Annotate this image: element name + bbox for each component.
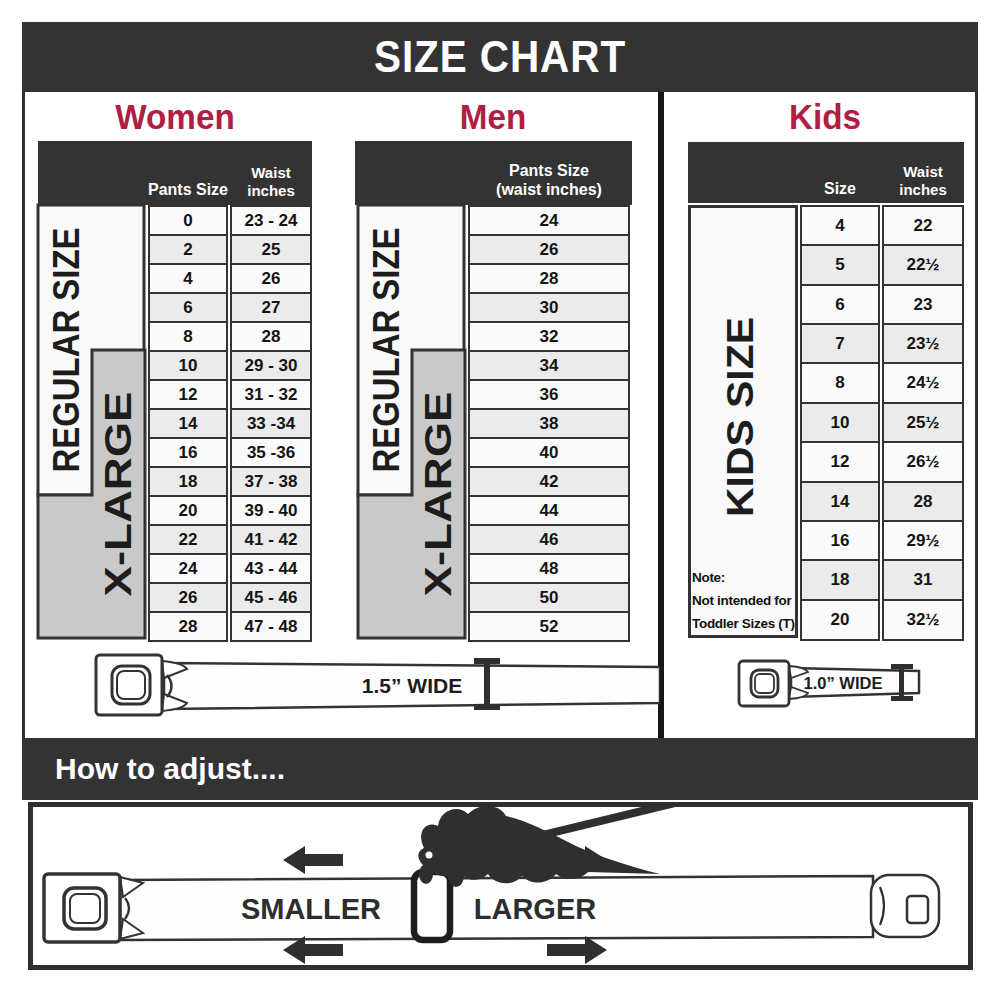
pants-size-cell: 18 — [148, 466, 228, 497]
size-cell: 8 — [800, 362, 880, 404]
pants-size-cell: 12 — [148, 379, 228, 410]
kids-belt-illustration: 1.0” WIDE — [735, 653, 925, 713]
waist-cell: 25 — [230, 234, 312, 265]
waist-cell: 22 — [882, 205, 964, 247]
adult-belt-illustration: 1.5” WIDE — [90, 653, 660, 717]
waist-cell: 22½ — [882, 244, 964, 286]
size-cell: 20 — [800, 599, 880, 641]
size-cell: 16 — [800, 520, 880, 562]
women-table-header: Pants Size Waist inches — [38, 141, 312, 205]
men-size-range-panel: REGULAR SIZE X-LARGE — [356, 203, 468, 643]
waist-cell: 35 -36 — [230, 437, 312, 468]
how-to-adjust-band: How to adjust.... — [22, 738, 978, 800]
column-header: inches — [899, 181, 947, 198]
waist-cell: 41 - 42 — [230, 524, 312, 555]
pants-size-cell: 52 — [468, 611, 630, 642]
regular-size-label: REGULAR SIZE — [46, 228, 87, 473]
size-cell: 6 — [800, 284, 880, 326]
waist-cell: 31 — [882, 559, 964, 601]
pants-size-cell: 14 — [148, 408, 228, 439]
belt-adjuster-icon — [414, 872, 450, 940]
title-band: SIZE CHART — [22, 22, 978, 92]
pants-size-cell: 24 — [148, 553, 228, 584]
note-line: Note: — [692, 566, 800, 589]
waist-cell: 47 - 48 — [230, 611, 312, 642]
column-header: Waist — [251, 164, 290, 181]
size-cell: 10 — [800, 402, 880, 444]
women-size-range-panel: REGULAR SIZE X-LARGE — [36, 203, 148, 643]
pants-size-cell: 10 — [148, 350, 228, 381]
size-cell: 18 — [800, 559, 880, 601]
waist-cell: 24½ — [882, 362, 964, 404]
waist-cell: 43 - 44 — [230, 553, 312, 584]
pants-size-cell: 24 — [468, 205, 630, 236]
pants-size-cell: 44 — [468, 495, 630, 526]
column-header: (waist inches) — [496, 181, 602, 199]
pants-size-cell: 46 — [468, 524, 630, 555]
waist-cell: 29 - 30 — [230, 350, 312, 381]
pants-size-cell: 48 — [468, 553, 630, 584]
arrow-left-icon — [283, 846, 343, 874]
waist-cell: 23 - 24 — [230, 205, 312, 236]
pants-size-cell: 40 — [468, 437, 630, 468]
column-header: Pants Size — [148, 181, 228, 199]
waist-cell: 39 - 40 — [230, 495, 312, 526]
waist-cell: 25½ — [882, 402, 964, 444]
smaller-label: SMALLER — [241, 893, 381, 925]
pants-size-cell: 36 — [468, 379, 630, 410]
size-cell: 12 — [800, 441, 880, 483]
waist-cell: 26 — [230, 263, 312, 294]
men-section-label: Men — [460, 97, 527, 137]
waist-cell: 28 — [230, 321, 312, 352]
men-table-header: Pants Size (waist inches) — [355, 141, 632, 205]
pants-size-cell: 4 — [148, 263, 228, 294]
seatbelt-buckle-icon — [96, 655, 162, 715]
size-chart-page: SIZE CHART Women Men Kids Pants Size Wai… — [0, 0, 1000, 1000]
arrow-right-icon — [547, 936, 607, 964]
pants-size-cell: 30 — [468, 292, 630, 323]
kids-size-label: KIDS SIZE — [720, 317, 761, 517]
note-line: Not intended for — [692, 589, 800, 612]
x-large-label: X-LARGE — [418, 392, 459, 597]
column-header: Pants Size — [509, 162, 589, 180]
column-header: Size — [824, 180, 856, 198]
waist-cell: 37 - 38 — [230, 466, 312, 497]
seatbelt-buckle-icon — [44, 874, 143, 942]
pants-size-cell: 2 — [148, 234, 228, 265]
larger-label: LARGER — [474, 893, 597, 925]
waist-cell: 45 - 46 — [230, 582, 312, 613]
waist-cell: 32½ — [882, 599, 964, 641]
waist-cell: 23½ — [882, 323, 964, 365]
waist-cell: 31 - 32 — [230, 379, 312, 410]
waist-cell: 23 — [882, 284, 964, 326]
women-section-label: Women — [115, 97, 234, 137]
waist-cell: 33 -34 — [230, 408, 312, 439]
pants-size-cell: 50 — [468, 582, 630, 613]
pants-size-cell: 26 — [468, 234, 630, 265]
size-cell: 4 — [800, 205, 880, 247]
regular-size-label: REGULAR SIZE — [366, 228, 407, 473]
belt-width-label: 1.0” WIDE — [804, 674, 883, 692]
pants-size-cell: 42 — [468, 466, 630, 497]
x-large-label: X-LARGE — [98, 392, 139, 597]
pants-size-cell: 16 — [148, 437, 228, 468]
how-to-adjust-title: How to adjust.... — [55, 752, 285, 786]
waist-cell: 26½ — [882, 441, 964, 483]
waist-cell: 27 — [230, 292, 312, 323]
belt-tip-icon — [871, 875, 939, 937]
column-header: Waist — [903, 163, 942, 180]
pants-size-cell: 20 — [148, 495, 228, 526]
pants-size-cell: 34 — [468, 350, 630, 381]
pants-size-cell: 38 — [468, 408, 630, 439]
column-header: inches — [247, 182, 295, 199]
seatbelt-buckle-icon — [739, 661, 789, 706]
adjust-illustration: SMALLER LARGER — [28, 802, 973, 970]
pants-size-cell: 22 — [148, 524, 228, 555]
waist-cell: 29½ — [882, 520, 964, 562]
pants-size-cell: 6 — [148, 292, 228, 323]
kids-section-label: Kids — [789, 97, 861, 137]
pants-size-cell: 28 — [468, 263, 630, 294]
belt-width-label: 1.5” WIDE — [362, 674, 462, 697]
kids-note: Note: Not intended for Toddler Sizes (T) — [692, 566, 800, 635]
size-cell: 5 — [800, 244, 880, 286]
waist-cell: 28 — [882, 481, 964, 523]
page-title: SIZE CHART — [374, 32, 626, 82]
section-divider — [658, 92, 664, 738]
pants-size-cell: 0 — [148, 205, 228, 236]
note-line: Toddler Sizes (T) — [692, 612, 800, 635]
pants-size-cell: 8 — [148, 321, 228, 352]
pants-size-cell: 28 — [148, 611, 228, 642]
pants-size-cell: 32 — [468, 321, 630, 352]
kids-table-header: Size Waist inches — [688, 142, 964, 203]
pants-size-cell: 26 — [148, 582, 228, 613]
size-cell: 14 — [800, 481, 880, 523]
size-cell: 7 — [800, 323, 880, 365]
